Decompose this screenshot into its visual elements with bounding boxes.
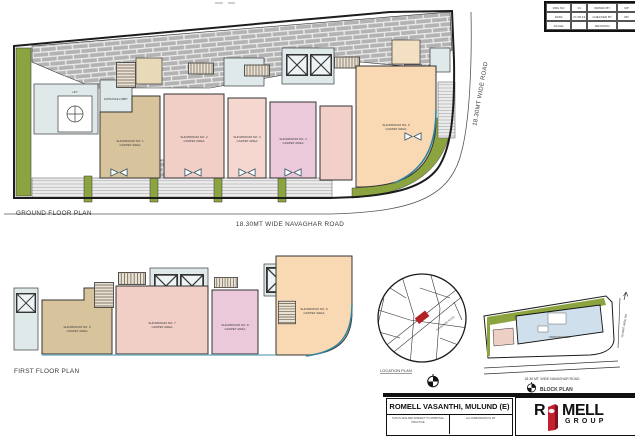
- block-annex: [493, 328, 514, 346]
- title-block: ROMELL VASANTHI, MULUND (E) THIS PLANS A…: [386, 398, 513, 436]
- block-side-road-line: [618, 298, 620, 348]
- unit-area: CARPET AREA: [67, 329, 88, 333]
- table-cell: RD: [617, 12, 635, 21]
- staircase-icon: [119, 272, 146, 285]
- scan-artifact: [228, 2, 235, 4]
- first-floor-plan: SHOWROOM NO. 6 CARPET AREA SHOWROOM NO. …: [0, 242, 380, 382]
- staircase-icon: [94, 283, 114, 308]
- staircase-icon: [245, 65, 270, 77]
- north-compass-icon: [428, 374, 439, 387]
- unit-7: [116, 286, 208, 354]
- drawing-sheet: SHOWROOM NO. 1 CARPET AREA SHOWROOM NO. …: [0, 0, 635, 430]
- unit-8: [212, 290, 258, 354]
- ground-floor-plan: SHOWROOM NO. 1 CARPET AREA SHOWROOM NO. …: [0, 0, 500, 232]
- table-cell: SCALE: [546, 21, 571, 30]
- table-cell: CHECKED BY: [587, 12, 617, 21]
- lift-shaft-icon: [311, 55, 331, 75]
- side-road-label: 18.30MT WIDE ROAD: [472, 61, 489, 126]
- north-compass-icon: [527, 382, 535, 392]
- lift-label: LIFT: [72, 90, 78, 94]
- table-cell: MP: [617, 3, 635, 12]
- unit-area: CARPET AREA: [386, 127, 407, 131]
- table-cell: [571, 21, 587, 30]
- logo-letter-r: R: [534, 402, 546, 420]
- staircase-icon: [116, 63, 136, 88]
- block-plan: PROPOSED BLDG. 18.30MT WIDE RD 18.30 MT.…: [478, 288, 635, 394]
- front-paving: [32, 178, 332, 198]
- table-cell: 27-08-19: [571, 12, 587, 21]
- project-title: ROMELL VASANTHI, MULUND (E): [387, 399, 512, 415]
- logo-pillar-icon: [546, 402, 560, 432]
- location-plan-caption: LOCATION PLAN: [380, 368, 412, 373]
- green-strip-left: [16, 48, 31, 196]
- unit-area: CARPET AREA: [283, 141, 304, 145]
- lift-shaft-icon: [287, 55, 307, 75]
- location-plan: NAVAGHAR ROAD LOCATION PLAN: [370, 268, 474, 394]
- block-road-label: 18.30 MT. WIDE NAVAGHAR ROAD: [525, 377, 580, 381]
- footprint-label: PROPOSED BLDG.: [549, 336, 571, 339]
- staircase-icon: [214, 277, 237, 288]
- staircase-icon: [278, 301, 296, 324]
- table-cell: [617, 21, 635, 30]
- revision-table: DRG NO 01 DRAWN BY MP DATE 27-08-19 CHEC…: [544, 1, 635, 32]
- unit-area: CARPET AREA: [237, 139, 258, 143]
- table-cell: DRAWN BY: [587, 3, 617, 12]
- title-note-right: ALL DIMENSIONS IN MT.: [450, 415, 512, 434]
- navaghar-road-label: 18.30MT WIDE NAVAGHAR ROAD: [236, 221, 344, 228]
- staircase-icon: [189, 63, 214, 75]
- footprint-core: [548, 313, 566, 324]
- north-arrow: [624, 292, 629, 300]
- unit-area: CARPET AREA: [120, 143, 141, 147]
- unit-area: CARPET AREA: [304, 311, 325, 315]
- logo-word-group: GROUP: [565, 418, 607, 425]
- block-side-road-label: 18.30MT WIDE RD: [620, 314, 628, 338]
- footprint-core: [538, 326, 548, 332]
- unit-area: CARPET AREA: [225, 327, 246, 331]
- logo-box: R MELL GROUP: [515, 397, 635, 436]
- first-floor-caption: FIRST FLOOR PLAN: [14, 368, 79, 375]
- unit-area: CARPET AREA: [152, 325, 173, 329]
- scan-artifact: [215, 2, 223, 4]
- block-road-lines: [484, 361, 620, 374]
- table-cell: 01: [571, 3, 587, 12]
- lobby-label: ENTRANCE LOBBY: [104, 97, 128, 101]
- romell-group-logo: R MELL GROUP: [532, 402, 620, 432]
- title-note-left: THIS PLANS ARE SUBJECT TO APPROVAL PRACT…: [387, 415, 450, 434]
- ground-floor-caption: GROUND FLOOR PLAN: [16, 210, 92, 217]
- unit-area: CARPET AREA: [184, 139, 205, 143]
- location-road-label: NAVAGHAR ROAD: [435, 315, 455, 332]
- unit-5a: [320, 106, 352, 180]
- table-cell: DATE: [546, 12, 571, 21]
- lift-shaft-icon: [17, 294, 36, 313]
- table-cell: REVISION: [587, 21, 617, 30]
- table-cell: DRG NO: [546, 3, 571, 12]
